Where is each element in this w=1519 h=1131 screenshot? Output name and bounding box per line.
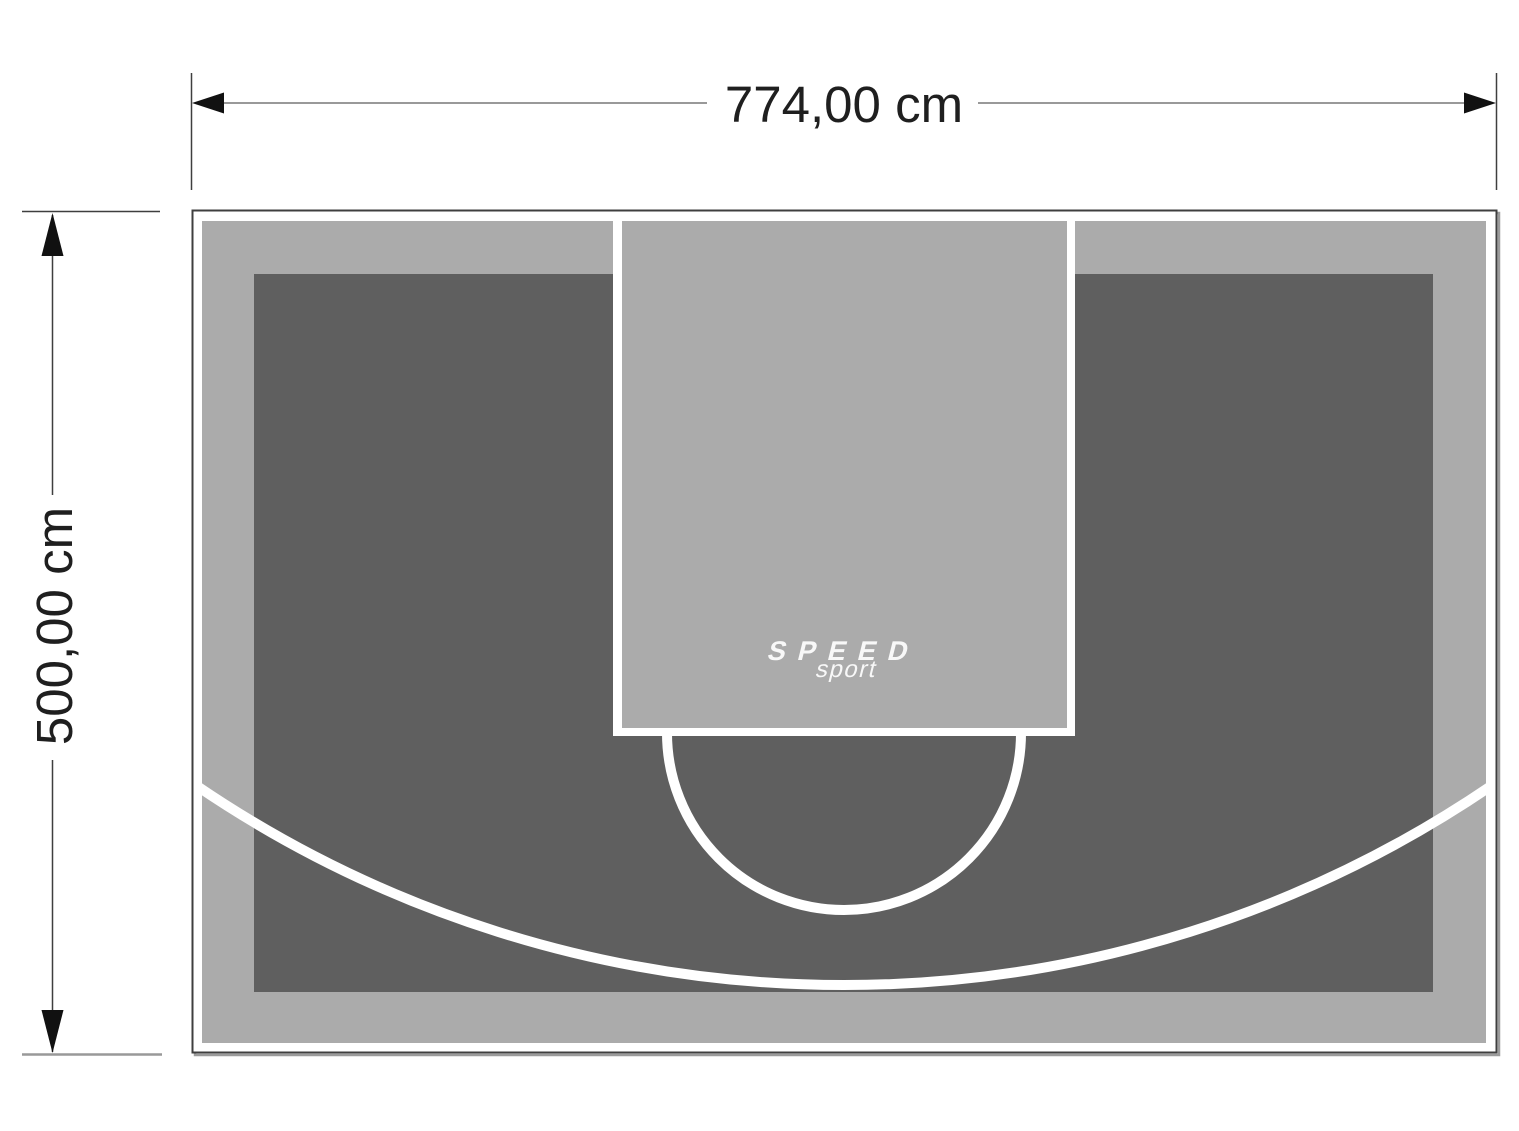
court-dimension-drawing: SPEED sport 774,00 cm 500,00 cm <box>0 0 1519 1131</box>
court: SPEED sport <box>193 211 1500 1056</box>
diagram-canvas: SPEED sport 774,00 cm 500,00 cm <box>0 0 1519 1131</box>
arrowhead-right-icon <box>1464 93 1496 114</box>
height-dimension: 500,00 cm <box>22 212 162 1055</box>
height-dimension-label: 500,00 cm <box>26 507 83 745</box>
logo-secondary-text: sport <box>813 656 880 683</box>
arrowhead-down-icon <box>42 1010 64 1053</box>
arrowhead-left-icon <box>192 93 224 114</box>
width-dimension: 774,00 cm <box>192 73 1497 190</box>
width-dimension-label: 774,00 cm <box>725 76 963 133</box>
arrowhead-up-icon <box>42 213 64 256</box>
